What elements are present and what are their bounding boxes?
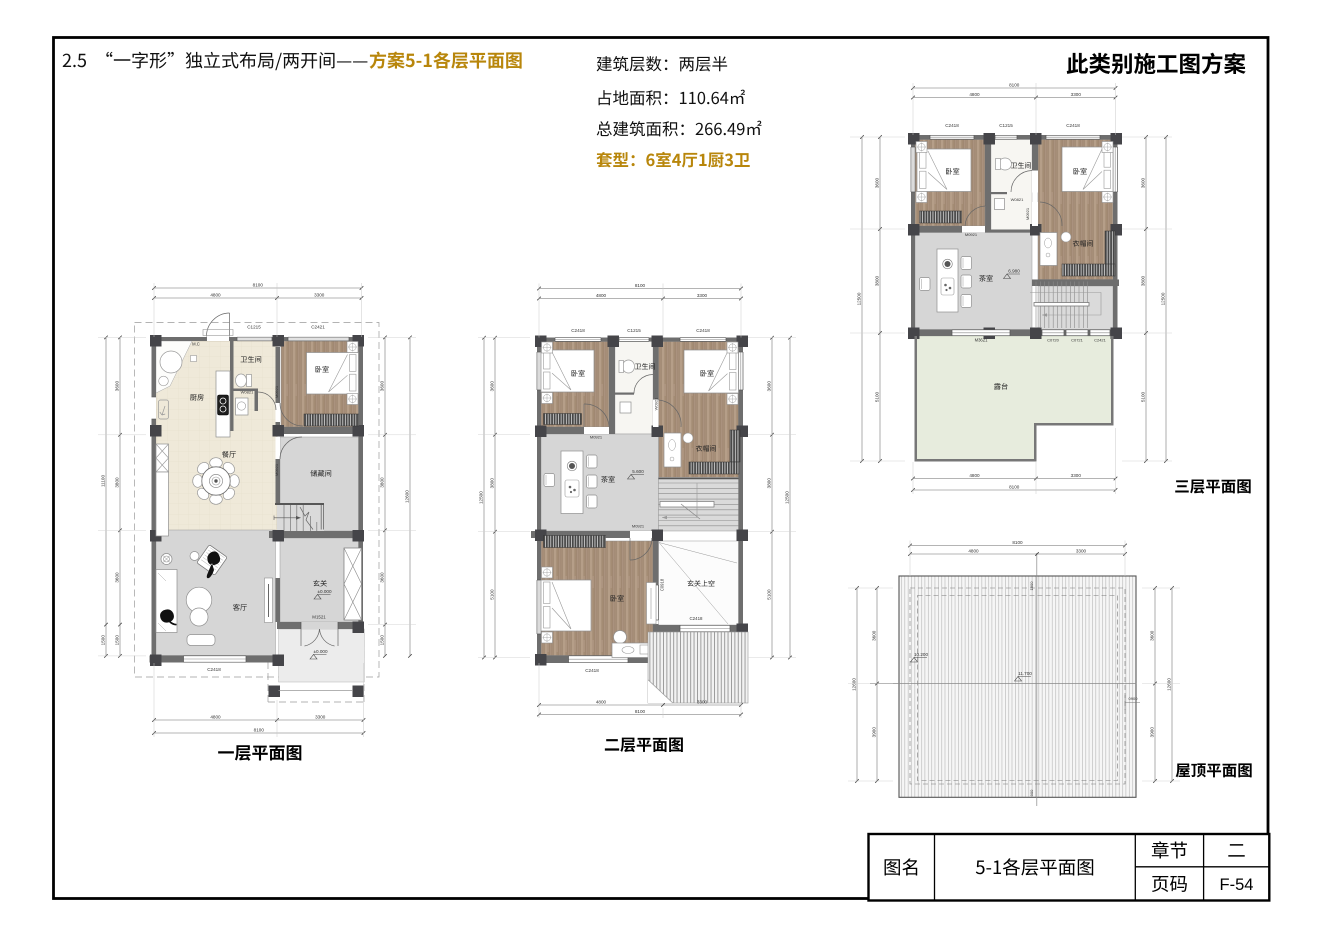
svg-text:C2418: C2418 bbox=[690, 616, 703, 621]
svg-text:C2418: C2418 bbox=[1066, 123, 1080, 128]
svg-text:10.200: 10.200 bbox=[914, 652, 928, 657]
svg-text:M0921: M0921 bbox=[632, 524, 645, 529]
svg-text:1500: 1500 bbox=[100, 635, 105, 646]
svg-text:C1215: C1215 bbox=[999, 123, 1013, 128]
svg-text:3300: 3300 bbox=[1071, 92, 1082, 97]
svg-text:8100: 8100 bbox=[253, 282, 264, 287]
svg-text:4800: 4800 bbox=[969, 473, 980, 478]
svg-text:5100: 5100 bbox=[1140, 391, 1145, 402]
svg-text:3800: 3800 bbox=[874, 275, 879, 286]
svg-text:3300: 3300 bbox=[697, 293, 708, 298]
svg-text:3600: 3600 bbox=[871, 630, 876, 641]
svg-text:3800: 3800 bbox=[766, 478, 771, 489]
svg-text:3800: 3800 bbox=[114, 477, 119, 488]
svg-text:±0.000: ±0.000 bbox=[317, 589, 331, 594]
svg-text:C2421: C2421 bbox=[311, 325, 325, 330]
svg-text:F-54: F-54 bbox=[1220, 876, 1254, 894]
svg-text:11.700: 11.700 bbox=[1018, 671, 1032, 676]
svg-text:4800: 4800 bbox=[596, 293, 607, 298]
svg-text:4800: 4800 bbox=[969, 92, 980, 97]
svg-text:C2418: C2418 bbox=[585, 668, 599, 673]
svg-text:8100: 8100 bbox=[635, 283, 646, 288]
svg-text:3900: 3900 bbox=[1149, 727, 1154, 738]
svg-text:C2418: C2418 bbox=[945, 123, 959, 128]
svg-text:3600: 3600 bbox=[114, 572, 119, 583]
svg-text:3600: 3600 bbox=[874, 177, 879, 188]
svg-text:±0.000: ±0.000 bbox=[313, 649, 327, 654]
svg-text:W0821: W0821 bbox=[241, 390, 254, 395]
svg-text:8100: 8100 bbox=[1009, 484, 1020, 489]
svg-text:3300: 3300 bbox=[314, 292, 325, 297]
svg-text:12600: 12600 bbox=[404, 490, 409, 503]
svg-text:1500: 1500 bbox=[114, 635, 119, 646]
svg-text:12500: 12500 bbox=[1160, 292, 1165, 305]
svg-text:3800: 3800 bbox=[379, 477, 384, 488]
svg-text:5100: 5100 bbox=[766, 589, 771, 600]
svg-text:0900: 0900 bbox=[1129, 696, 1139, 701]
svg-text:3800: 3800 bbox=[1140, 275, 1145, 286]
svg-text:3300: 3300 bbox=[1071, 473, 1082, 478]
svg-text:8100: 8100 bbox=[254, 727, 265, 732]
svg-text:4800: 4800 bbox=[596, 699, 607, 704]
svg-text:C2418: C2418 bbox=[696, 328, 710, 333]
svg-text:M3621: M3621 bbox=[975, 338, 988, 343]
svg-text:8100: 8100 bbox=[1009, 82, 1020, 87]
svg-text:M0921: M0921 bbox=[965, 232, 978, 237]
svg-text:C2418: C2418 bbox=[207, 667, 221, 672]
svg-text:11100: 11100 bbox=[100, 475, 105, 488]
svg-text:12600: 12600 bbox=[1166, 678, 1171, 691]
svg-text:M0921: M0921 bbox=[590, 435, 603, 440]
svg-text:C0918: C0918 bbox=[660, 578, 665, 591]
svg-text:4800: 4800 bbox=[210, 292, 221, 297]
svg-text:3600: 3600 bbox=[766, 381, 771, 392]
svg-text:12600: 12600 bbox=[851, 678, 856, 691]
svg-text:1500: 1500 bbox=[379, 635, 384, 646]
svg-text:W0821: W0821 bbox=[1011, 197, 1024, 202]
svg-text:C2421: C2421 bbox=[1094, 338, 1107, 343]
svg-text:C0721: C0721 bbox=[1071, 338, 1084, 343]
svg-text:C1215: C1215 bbox=[627, 328, 641, 333]
svg-text:M0921: M0921 bbox=[274, 463, 279, 476]
svg-text:3900: 3900 bbox=[871, 727, 876, 738]
svg-text:C2418: C2418 bbox=[571, 328, 585, 333]
svg-text:3800: 3800 bbox=[489, 478, 494, 489]
svg-text:6.980: 6.980 bbox=[1008, 269, 1020, 274]
svg-text:8100: 8100 bbox=[1012, 540, 1023, 545]
svg-text:12500: 12500 bbox=[856, 292, 861, 305]
svg-text:3600: 3600 bbox=[379, 381, 384, 392]
svg-text:12500: 12500 bbox=[478, 491, 483, 504]
svg-text:M0921: M0921 bbox=[1025, 207, 1030, 220]
svg-text:3300: 3300 bbox=[1076, 548, 1087, 553]
svg-text:3600: 3600 bbox=[1149, 630, 1154, 641]
svg-text:12500: 12500 bbox=[784, 491, 789, 504]
svg-text:M.C: M.C bbox=[192, 342, 200, 347]
svg-text:5.600: 5.600 bbox=[632, 469, 644, 474]
svg-text:1800: 1800 bbox=[1029, 581, 1034, 591]
svg-text:8100: 8100 bbox=[635, 709, 646, 714]
svg-text:C1215: C1215 bbox=[247, 325, 261, 330]
svg-text:4800: 4800 bbox=[210, 714, 221, 719]
svg-text:4800: 4800 bbox=[968, 548, 979, 553]
svg-text:3600: 3600 bbox=[1140, 177, 1145, 188]
svg-text:900: 900 bbox=[1029, 789, 1034, 796]
svg-text:M1521: M1521 bbox=[312, 615, 326, 620]
svg-text:W0921: W0921 bbox=[654, 397, 659, 410]
svg-text:3300: 3300 bbox=[315, 714, 326, 719]
svg-text:5100: 5100 bbox=[489, 589, 494, 600]
svg-text:M0921: M0921 bbox=[274, 385, 279, 398]
svg-text:5100: 5100 bbox=[874, 391, 879, 402]
svg-text:C0720: C0720 bbox=[1047, 338, 1060, 343]
svg-text:3600: 3600 bbox=[379, 572, 384, 583]
svg-text:3600: 3600 bbox=[114, 381, 119, 392]
svg-text:3300: 3300 bbox=[697, 699, 708, 704]
svg-text:3600: 3600 bbox=[489, 381, 494, 392]
